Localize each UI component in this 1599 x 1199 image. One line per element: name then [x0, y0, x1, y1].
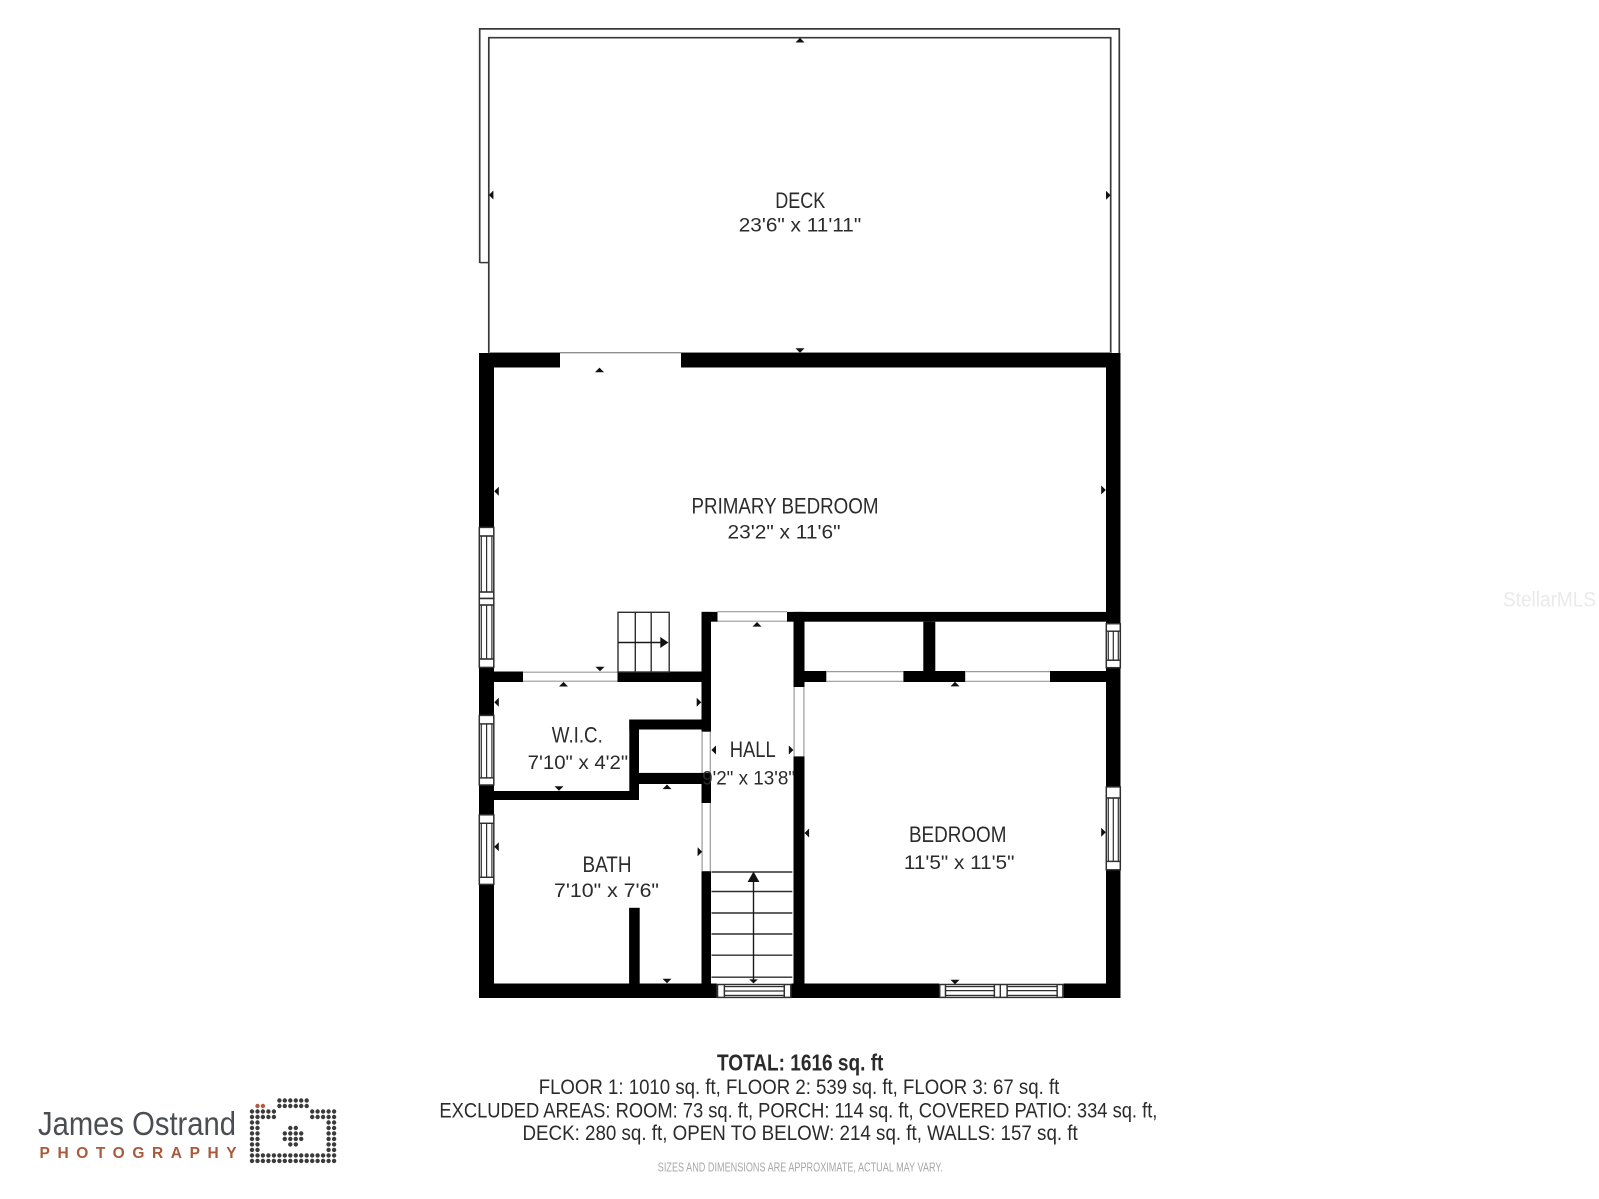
svg-text:23'2" x 11'6": 23'2" x 11'6": [728, 523, 841, 544]
svg-text:9'2" x 13'8": 9'2" x 13'8": [702, 769, 795, 790]
svg-text:DECK: 280 sq. ft, OPEN TO BELO: DECK: 280 sq. ft, OPEN TO BELOW: 214 sq.…: [522, 1122, 1077, 1145]
svg-text:SIZES AND DIMENSIONS ARE APPRO: SIZES AND DIMENSIONS ARE APPROXIMATE, AC…: [658, 1160, 943, 1175]
svg-text:11'5" x 11'5": 11'5" x 11'5": [904, 853, 1015, 874]
svg-text:7'10" x 4'2": 7'10" x 4'2": [528, 753, 629, 774]
svg-text:DECK: DECK: [775, 188, 825, 213]
svg-text:FLOOR 1: 1010 sq. ft, FLOOR 2:: FLOOR 1: 1010 sq. ft, FLOOR 2: 539 sq. f…: [539, 1076, 1060, 1099]
svg-text:23'6" x 11'11": 23'6" x 11'11": [739, 216, 862, 237]
svg-text:PHOTOGRAPHY: PHOTOGRAPHY: [40, 1145, 245, 1162]
svg-text:TOTAL: 1616 sq. ft: TOTAL: 1616 sq. ft: [717, 1050, 884, 1076]
svg-text:BATH: BATH: [583, 852, 632, 877]
svg-text:BEDROOM: BEDROOM: [909, 822, 1007, 847]
svg-text:7'10" x 7'6": 7'10" x 7'6": [554, 881, 659, 902]
svg-text:EXCLUDED AREAS: ROOM: 73 sq. f: EXCLUDED AREAS: ROOM: 73 sq. ft, PORCH: …: [439, 1099, 1157, 1122]
svg-text:HALL: HALL: [730, 737, 776, 762]
svg-text:James Ostrand: James Ostrand: [38, 1105, 236, 1142]
svg-text:W.I.C.: W.I.C.: [552, 723, 603, 748]
svg-text:StellarMLS: StellarMLS: [1503, 589, 1596, 612]
svg-text:PRIMARY BEDROOM: PRIMARY BEDROOM: [692, 494, 879, 519]
